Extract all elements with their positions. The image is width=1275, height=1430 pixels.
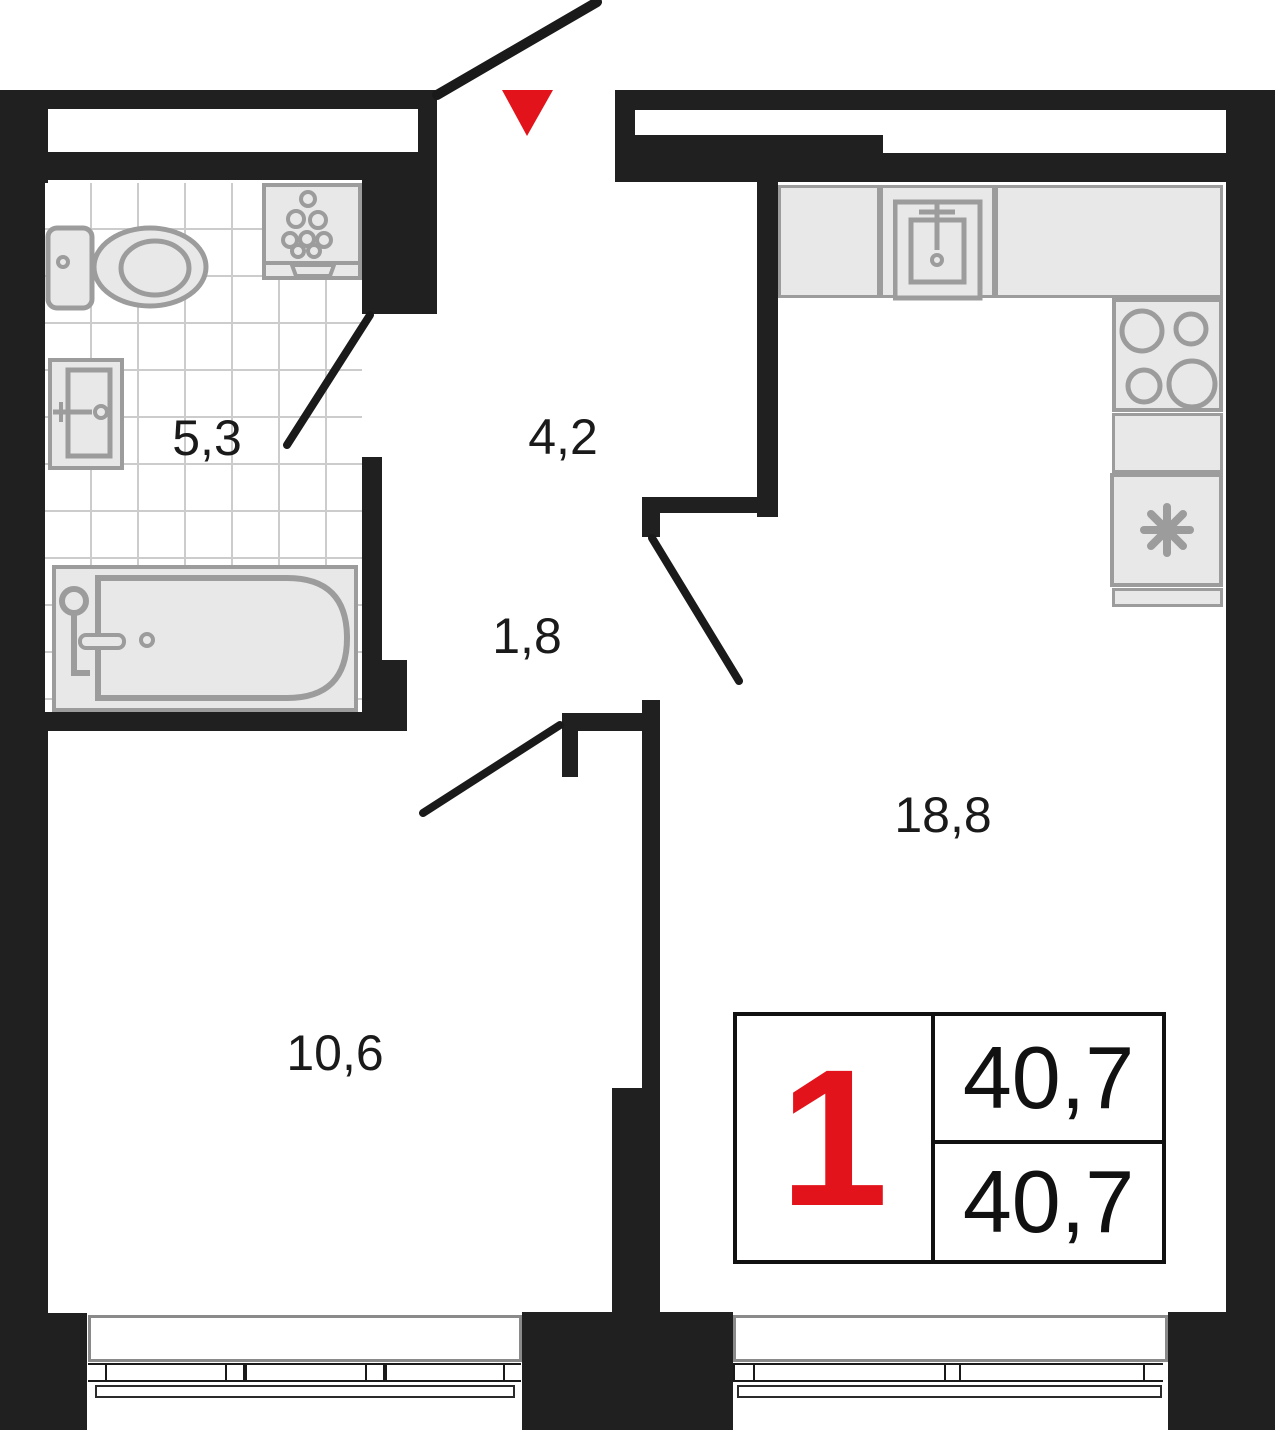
wall-top-kitchen-lowerA	[635, 135, 883, 182]
rooms-count: 1	[737, 1016, 931, 1260]
bedroom-window-panes	[88, 1363, 521, 1382]
wall-top-kitchen-upper	[615, 90, 1230, 110]
corridor-area-label: 1,8	[492, 607, 562, 665]
living-area: 40,7	[935, 1144, 1162, 1260]
bedroom-door-swing	[423, 725, 560, 813]
entrance-door-swing	[437, 2, 597, 95]
bathroom-window	[48, 109, 418, 152]
hallway-area-label: 4,2	[528, 408, 598, 466]
bathtub-icon	[52, 565, 358, 712]
wall-top-kitchen-lowerB	[883, 153, 1230, 182]
kitchen-door-swing	[652, 538, 739, 681]
living-window-panes	[733, 1363, 1163, 1382]
kitchen-counter-end-strip	[1112, 588, 1223, 607]
bathroom-area-label: 5,3	[172, 409, 242, 467]
kitchen-counter-cell	[778, 185, 880, 298]
wall-top-bathroom-jamb	[418, 109, 437, 152]
wall-top-kitchen-jamb	[615, 110, 635, 182]
bedroom-area-label: 10,6	[286, 1024, 383, 1082]
fridge-icon	[1110, 473, 1223, 587]
wall-bathroom-right-pillar	[362, 180, 437, 314]
bedroom-balcony-frame	[88, 1315, 522, 1362]
washing-machine-icon	[262, 183, 362, 280]
entrance-direction-icon	[502, 90, 553, 136]
total-area: 40,7	[935, 1016, 1162, 1144]
bedroom-window-sill	[95, 1385, 515, 1398]
floor-plan: 5,3 4,2 1,8 10,6 18,8 1 40,7 40,7	[0, 0, 1275, 1430]
wall-top-bathroom-upper	[0, 90, 437, 109]
living-balcony-frame	[733, 1315, 1168, 1362]
wall-bathroom-bottom	[0, 712, 407, 731]
kitchen-sink-icon	[893, 198, 985, 302]
kitchen-counter-gap-cell	[1112, 413, 1223, 473]
wall-left-outer	[0, 90, 48, 1430]
wall-corridor-bottom-jamb	[562, 713, 578, 777]
wall-bottom-left-chunk	[0, 1313, 87, 1430]
kitchen-window-right	[883, 110, 1226, 153]
kitchen-corner-counter	[995, 185, 1223, 298]
asterisk-icon	[1144, 507, 1190, 553]
kitchen-window-left	[635, 110, 883, 135]
living-area-label: 18,8	[894, 786, 991, 844]
wall-top-bathroom-lower	[0, 152, 437, 180]
bathroom-sink-icon	[48, 358, 124, 470]
wall-bedroom-living-thin	[642, 700, 660, 1088]
stove-icon	[1112, 298, 1223, 412]
wall-hall-kitchen	[757, 182, 778, 517]
wall-corridor-top-jamb	[642, 497, 660, 537]
wall-bottom-center-chunk	[522, 1312, 733, 1430]
apartment-info-badge: 1 40,7 40,7	[733, 1012, 1166, 1264]
wall-bedroom-living-wide	[612, 1088, 660, 1313]
wall-bottom-right-chunk	[1168, 1312, 1275, 1430]
wall-right-outer	[1226, 90, 1275, 1430]
toilet-icon	[45, 225, 215, 315]
living-window-sill	[737, 1385, 1162, 1398]
